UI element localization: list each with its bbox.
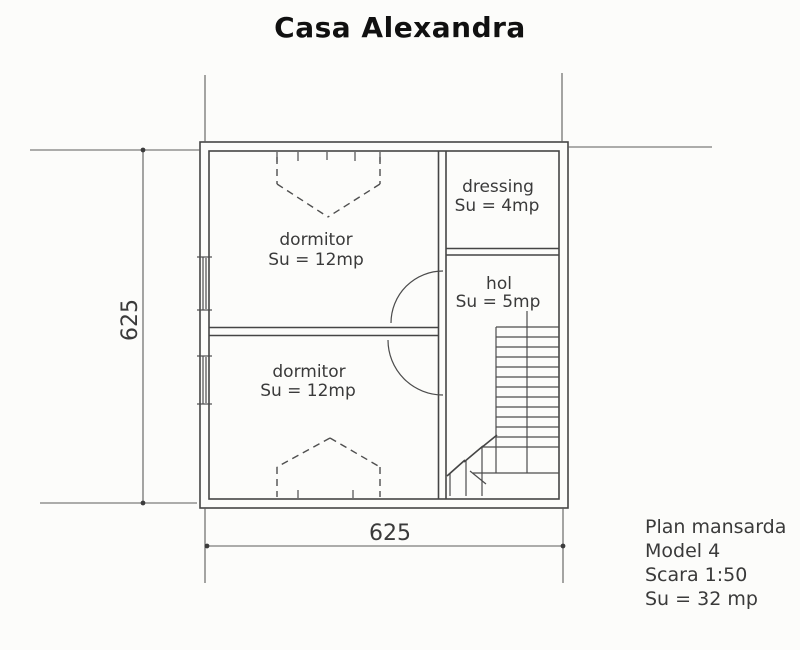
room-label-dormitor-top: dormitor (279, 230, 352, 250)
door-arc-upper-bedroom (391, 271, 443, 323)
dimension-left (30, 148, 200, 506)
roof-break-lower (277, 438, 380, 498)
room-label-hol: hol (486, 274, 512, 294)
stair-cut-diagonal (447, 460, 465, 476)
roof-break-upper (277, 152, 380, 217)
dimension-tick (205, 544, 210, 549)
door-arc-lower-bedroom (388, 340, 443, 395)
doors (388, 271, 443, 395)
legend-total-area: Su = 32 mp (645, 588, 758, 610)
dimension-tick (561, 544, 566, 549)
dimension-tick (141, 501, 146, 506)
dimension-tick (141, 148, 146, 153)
legend-model: Model 4 (645, 540, 720, 562)
room-label-dressing: dressing (462, 177, 534, 197)
legend-scale: Scara 1:50 (645, 564, 747, 586)
dimension-text-bottom: 625 (369, 521, 411, 546)
plan-title: Casa Alexandra (274, 11, 526, 44)
roof-dash-diagonal (277, 184, 328, 217)
dimension-text-left: 625 (118, 299, 143, 341)
stair-cut-diagonal (464, 446, 483, 462)
drawing-canvas: Casa Alexandra dormitor Su = 12mp dressi… (0, 0, 800, 650)
room-area-dressing: Su = 4mp (455, 196, 540, 216)
room-area-hol: Su = 5mp (456, 292, 541, 312)
room-area-dormitor-top: Su = 12mp (268, 250, 364, 270)
staircase (447, 311, 559, 496)
room-label-dormitor-bottom: dormitor (272, 362, 345, 382)
stair-cut-diagonal (481, 435, 497, 448)
legend-block: Plan mansarda Model 4 Scara 1:50 Su = 32… (645, 516, 786, 610)
roof-dash-diagonal (277, 438, 330, 467)
floor-plan-svg: Casa Alexandra dormitor Su = 12mp dressi… (0, 0, 800, 650)
roof-dash-diagonal (328, 184, 380, 217)
roof-dash-diagonal (330, 438, 380, 467)
legend-plan-name: Plan mansarda (645, 516, 786, 538)
extension-lines-top-right (205, 73, 712, 147)
room-area-dormitor-bottom: Su = 12mp (260, 381, 356, 401)
